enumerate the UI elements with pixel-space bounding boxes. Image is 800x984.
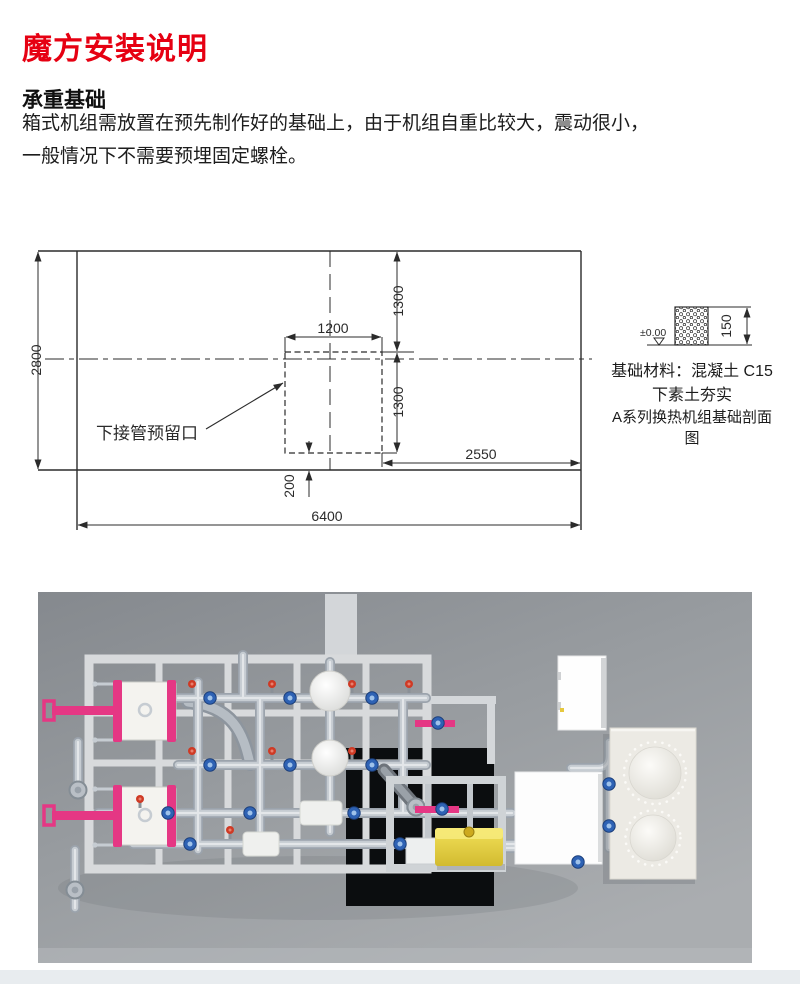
opening-callout: 下接管预留口	[96, 383, 283, 443]
level-marker-icon	[654, 338, 664, 345]
detail-material-line-2: 下素土夯实	[601, 381, 783, 405]
dim-1300-pair: 1300 1300	[382, 252, 414, 453]
dim-label-1300-upper: 1300	[390, 285, 406, 316]
dim-right-offset: 2550	[382, 446, 580, 467]
opening-label: 下接管预留口	[96, 424, 198, 443]
equipment-render-svg	[38, 592, 752, 963]
white-equipment-box	[515, 772, 602, 864]
dim-total-width: 6400	[78, 508, 580, 525]
dim-label-200: 200	[281, 474, 297, 498]
pipe-flange	[67, 882, 84, 899]
dim-opening-width: 1200	[285, 320, 382, 352]
foundation-section-detail: ±0.00 150	[640, 307, 752, 345]
document-page: 魔方安装说明 承重基础 箱式机组需放置在预先制作好的基础上，由于机组自重比较大，…	[0, 0, 800, 984]
level-label: ±0.00	[640, 327, 666, 339]
inline-filter	[300, 801, 342, 825]
dim-label-2800: 2800	[28, 344, 44, 375]
tank-dome-1	[629, 747, 681, 799]
tank-dome-2	[630, 815, 676, 861]
equipment-render-photo	[38, 592, 752, 963]
pipe-opening-dashed-rect	[285, 352, 382, 453]
pipe-flange	[70, 782, 87, 799]
pump-circle-1	[310, 671, 350, 711]
dim-label-1200: 1200	[317, 320, 348, 336]
dim-label-2550: 2550	[465, 446, 496, 462]
dim-label-6400: 6400	[311, 508, 342, 524]
page-title: 魔方安装说明	[22, 24, 208, 68]
detail-material-line-1: 基础材料：混凝土 C15	[601, 357, 783, 381]
control-cabinet	[558, 656, 606, 730]
body-text-line-1: 箱式机组需放置在预先制作好的基础上，由于机组自重比较大，震动很小，	[22, 107, 649, 140]
dim-label-150: 150	[718, 314, 734, 338]
dim-label-1300-lower: 1300	[390, 386, 406, 417]
detail-caption: A系列换热机组基础剖面图	[612, 407, 772, 449]
tank-cap-icon	[464, 827, 474, 837]
bottom-strip	[0, 970, 800, 984]
pump-circle-2	[312, 740, 348, 776]
buffer-tank-panel	[603, 728, 696, 884]
inline-filter	[243, 832, 279, 856]
dim-total-height: 2800	[28, 252, 44, 469]
body-text-line-2: 一般情况下不需要预埋固定螺栓。	[22, 140, 649, 173]
yellow-tank	[435, 827, 505, 870]
concrete-hatch-block	[675, 307, 708, 345]
body-paragraph: 箱式机组需放置在预先制作好的基础上，由于机组自重比较大，震动很小， 一般情况下不…	[22, 107, 649, 173]
photo-floor-strip	[38, 948, 752, 963]
